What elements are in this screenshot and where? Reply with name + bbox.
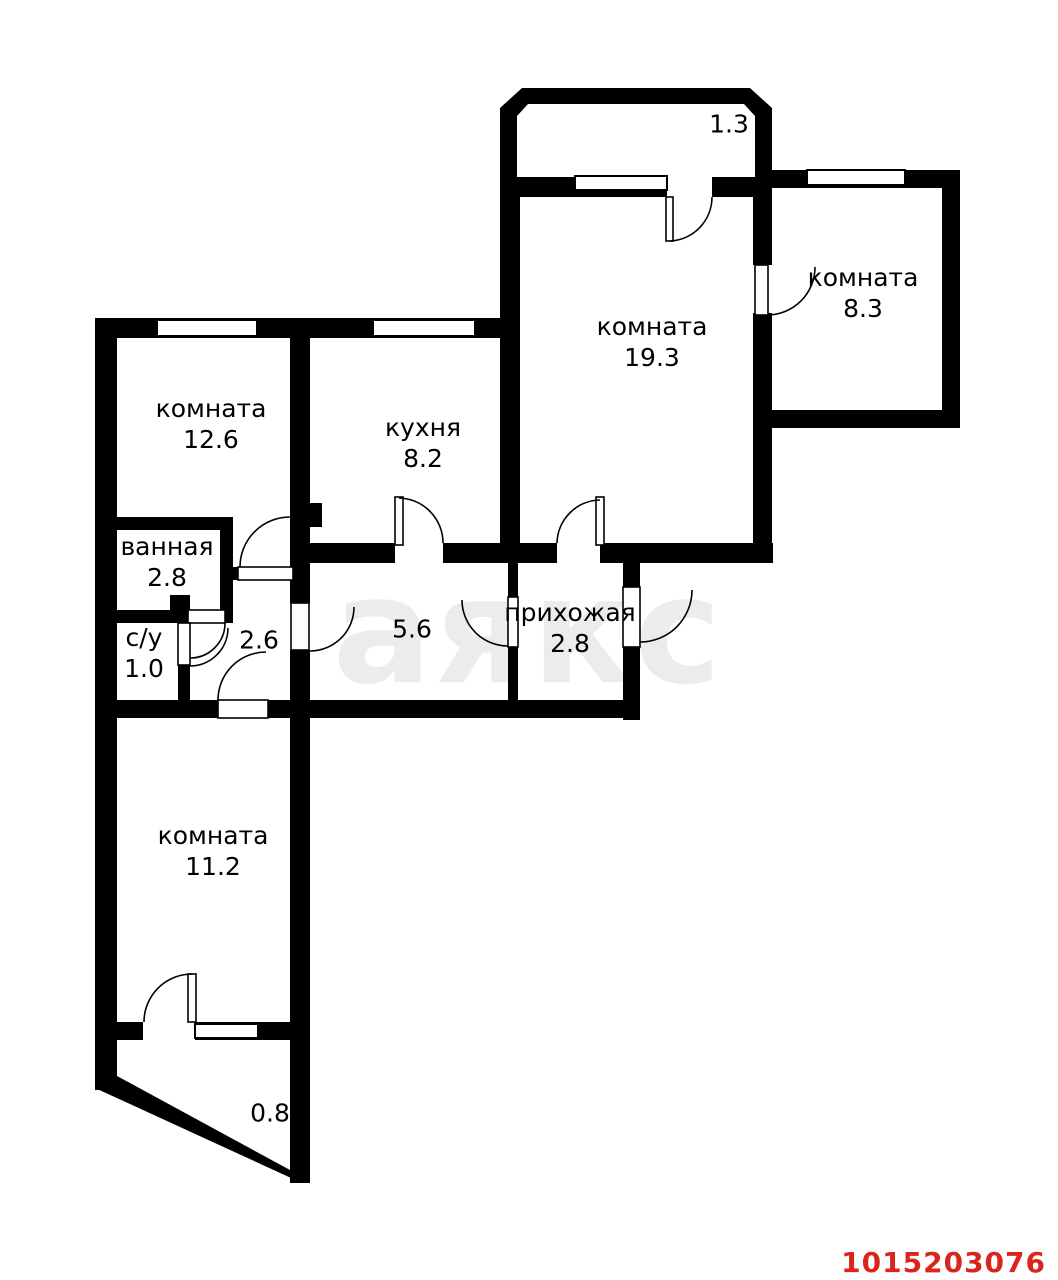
wall-bottom-band xyxy=(95,700,640,718)
wall-mid-horizontal xyxy=(290,543,773,563)
door-corridor26-room11 xyxy=(218,652,268,718)
room-label-hallway: прихожая 2.8 xyxy=(504,597,635,660)
wall-room11-right xyxy=(290,700,310,1183)
room-label-corridor56: 5.6 xyxy=(392,613,432,644)
floor-plan: аякс xyxy=(0,0,1058,1280)
door-corridor26-corridor56 xyxy=(291,603,354,651)
door-balcony-top xyxy=(666,197,712,241)
window-kitchen xyxy=(373,320,475,336)
wall-bath-pillar xyxy=(170,595,190,612)
room-label-corridor26: 2.6 xyxy=(239,624,279,655)
door-kitchen xyxy=(395,497,443,545)
room-label-room8: комната 8.3 xyxy=(808,262,919,325)
room-label-bathroom: ванная 2.8 xyxy=(120,531,213,594)
wall-kitchen-notch xyxy=(308,503,322,527)
wall-bath-right xyxy=(220,517,233,622)
listing-id: 1015203076 xyxy=(841,1246,1046,1279)
door-room12-corridor xyxy=(238,517,293,580)
room-label-balcony-bottom: 0.8 xyxy=(250,1097,290,1128)
window-room12 xyxy=(157,320,257,336)
door-room8 xyxy=(755,265,815,315)
window-room8 xyxy=(807,170,905,185)
door-toilet xyxy=(178,623,228,666)
door-room11-balcony xyxy=(144,974,196,1022)
door-openings xyxy=(143,177,772,1040)
room-label-balcony-top: 1.3 xyxy=(709,108,749,139)
wall-room8-bottom xyxy=(772,410,960,428)
door-room19-hallway xyxy=(557,497,604,545)
wall-bath-top xyxy=(95,517,233,530)
wall-room19-right xyxy=(753,177,772,563)
room-label-kitchen: кухня 8.2 xyxy=(385,412,461,475)
window-room11 xyxy=(195,1024,258,1038)
room-label-toilet: с/у 1.0 xyxy=(124,622,164,685)
room-label-room11: комната 11.2 xyxy=(158,820,269,883)
room-label-room19: комната 19.3 xyxy=(597,311,708,374)
wall-room19-left xyxy=(500,177,520,543)
wall-room8-right xyxy=(942,170,960,428)
window-balcony-top xyxy=(575,176,667,190)
room-label-room12: комната 12.6 xyxy=(156,393,267,456)
